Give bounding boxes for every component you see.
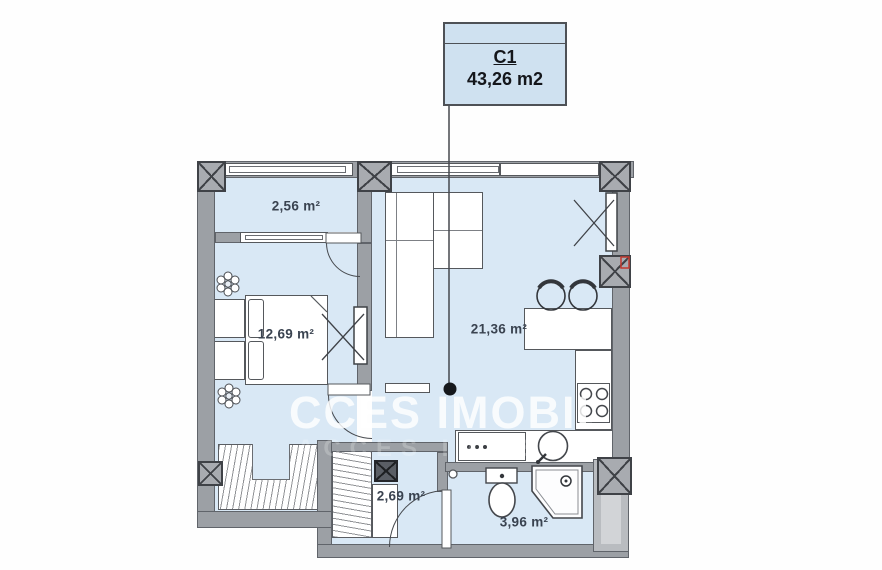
chair-left-icon: [537, 281, 565, 310]
living-area-label: 21,36 m²: [471, 322, 527, 337]
bathroom-area-label: 3,96 m²: [500, 515, 549, 530]
balcony-area-label: 2,56 m²: [272, 199, 321, 214]
red-utility-mark: [621, 257, 629, 268]
entry-door-leaf: [442, 490, 451, 548]
title-box-strip: [445, 24, 565, 44]
chair-right-icon: [569, 281, 597, 310]
door-pivot-icon: [449, 470, 457, 478]
plant-bottom-icon: [218, 384, 240, 408]
hallway-area-label: 2,69 m²: [377, 489, 426, 504]
watermark-second-row: ACCES IMOBIL: [297, 435, 537, 465]
toilet-icon: [486, 468, 517, 517]
watermark-text: CCES IMOBIL: [289, 387, 592, 439]
watermark: CCES IMOBIL: [283, 384, 592, 442]
unit-total-area: 43,26 m2: [445, 69, 565, 90]
bedroom-area-label: 12,69 m²: [258, 327, 314, 342]
shower-icon: [532, 466, 582, 518]
bed-fold-line: [311, 296, 327, 312]
unit-name: C1: [445, 47, 565, 68]
unit-title-box: C1 43,26 m2: [443, 22, 567, 106]
balcony-door-leaf: [326, 233, 361, 243]
fixtures-overlay: [0, 0, 882, 570]
plant-top-icon: [217, 272, 239, 296]
floor-plan-canvas: 2,56 m² 12,69 m² 21,36 m² 2,69 m² 3,96 m…: [0, 0, 882, 570]
